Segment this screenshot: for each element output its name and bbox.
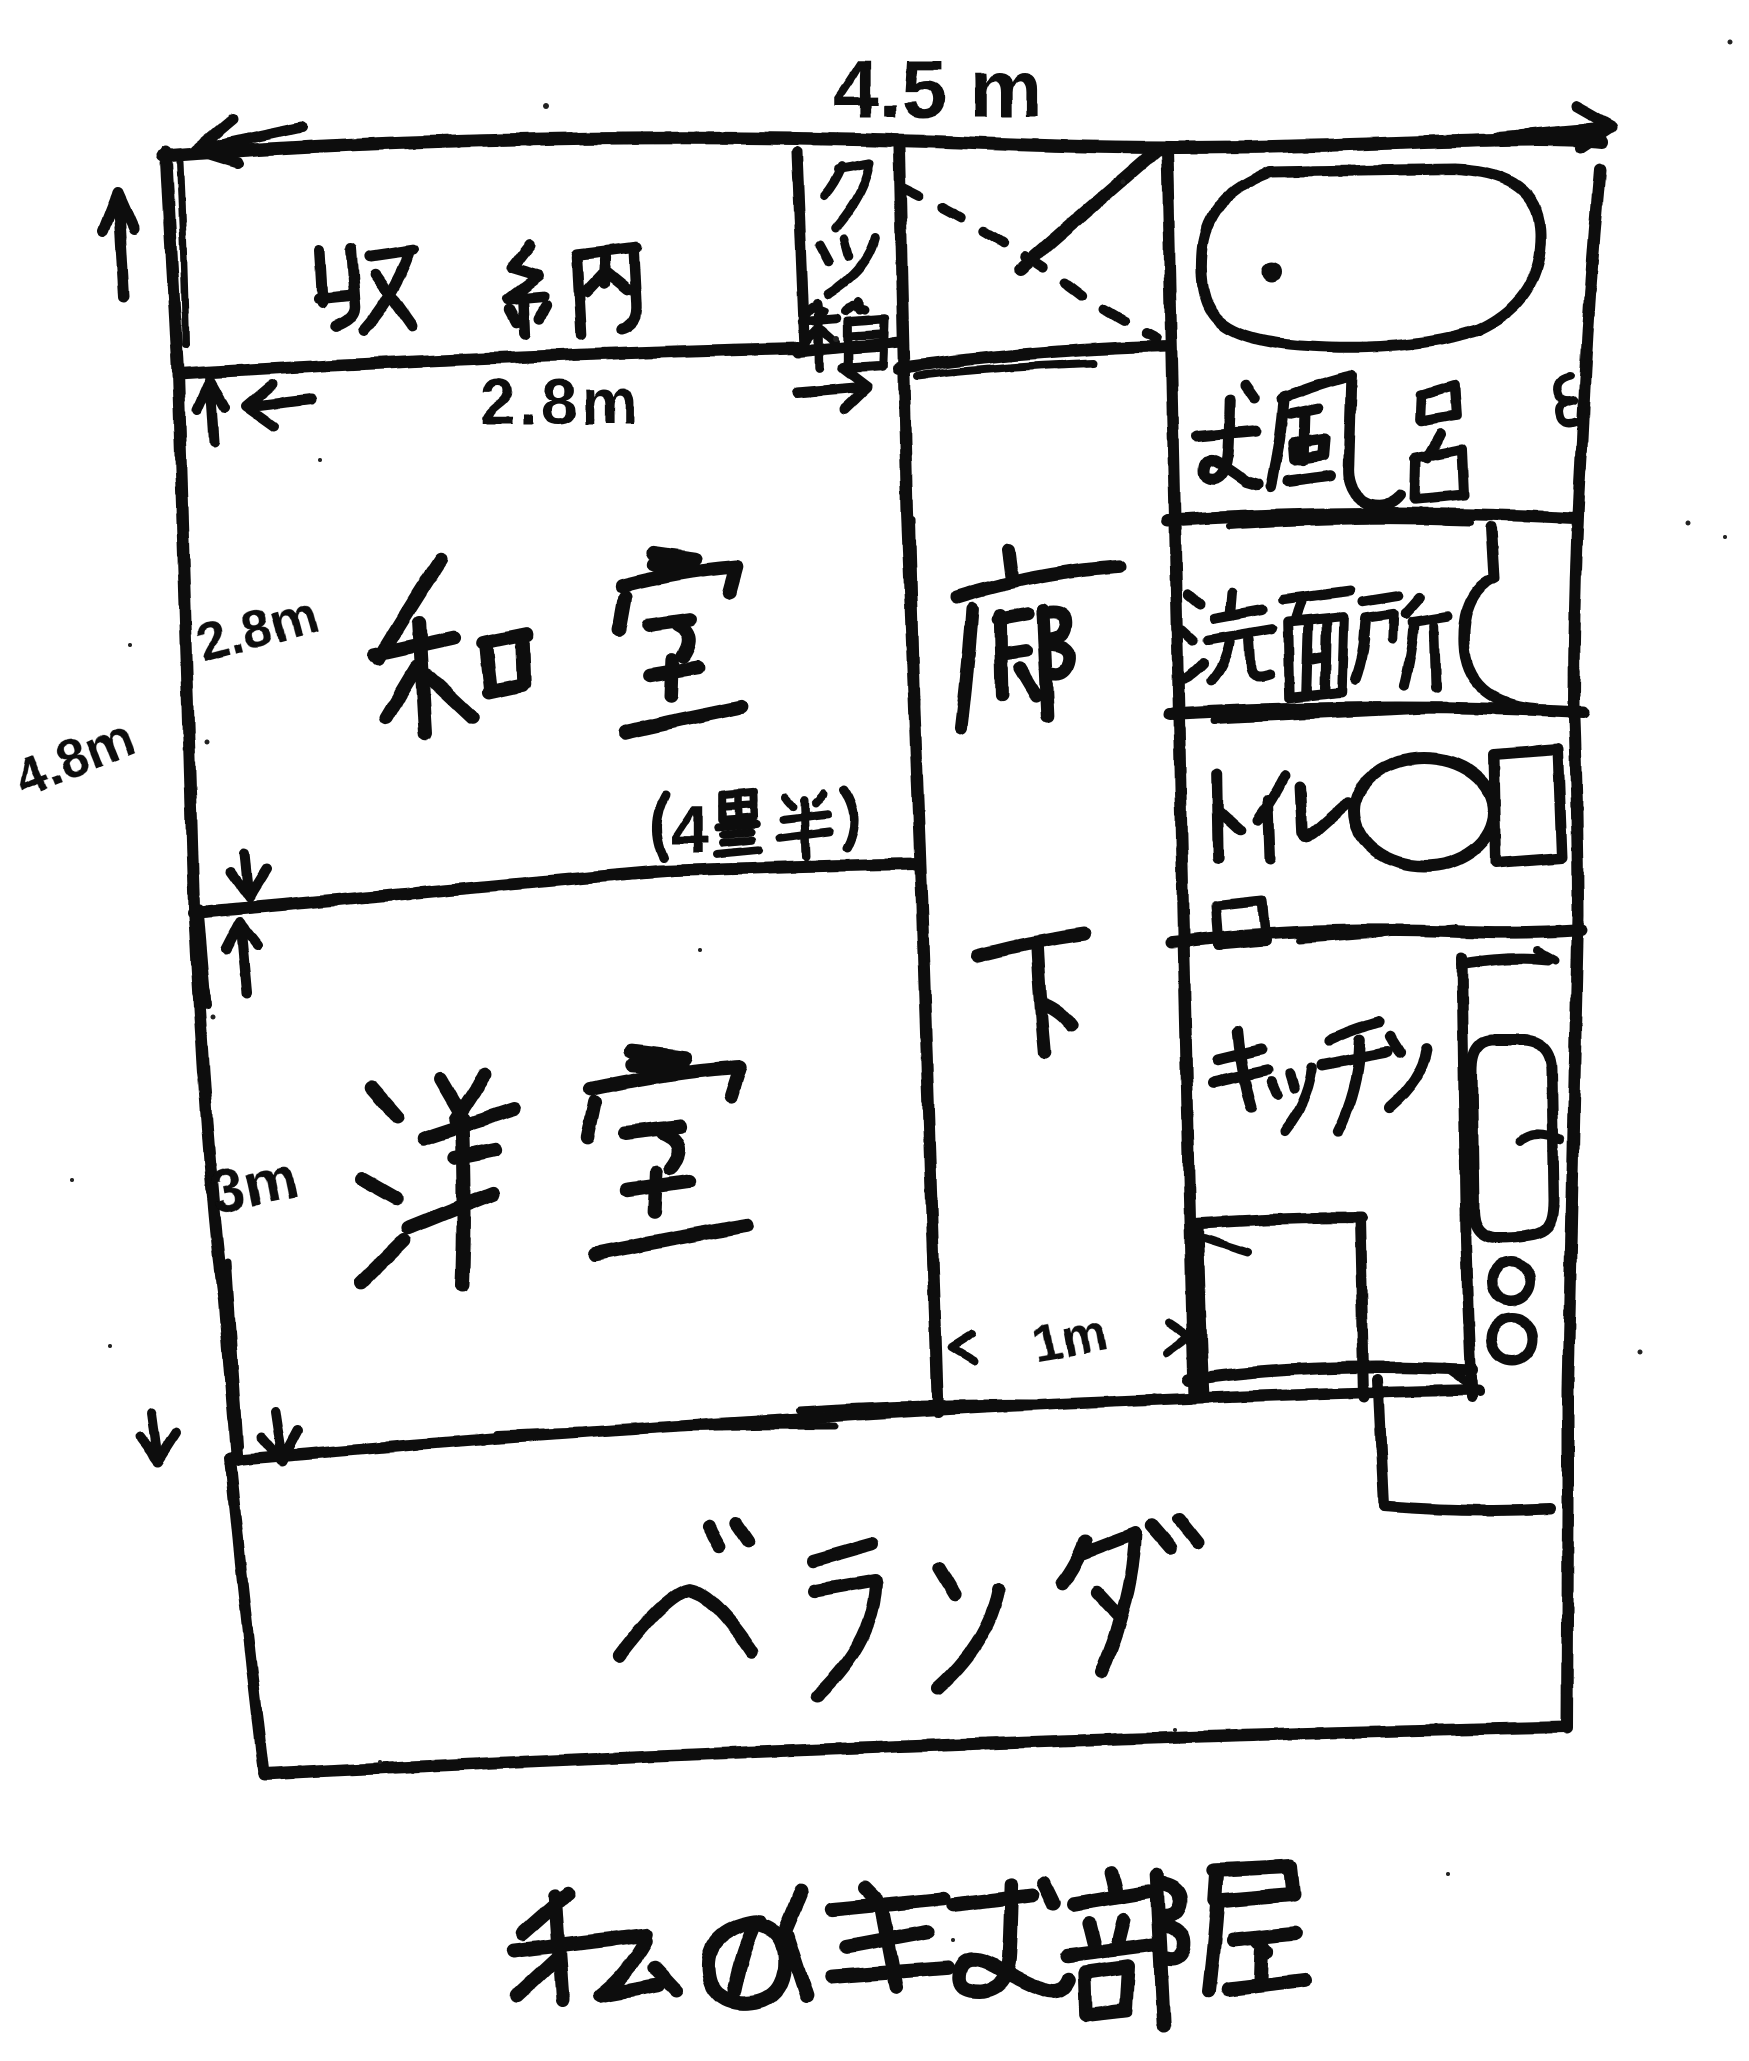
svg-text:2.8m: 2.8m [480,366,642,438]
svg-text:2.8m: 2.8m [191,584,325,674]
svg-text:4.5 m: 4.5 m [833,44,1043,135]
svg-text:3m: 3m [205,1143,304,1227]
svg-text:4: 4 [671,792,709,868]
svg-text:1m: 1m [1028,1304,1112,1374]
svg-text:4.8m: 4.8m [6,707,143,809]
